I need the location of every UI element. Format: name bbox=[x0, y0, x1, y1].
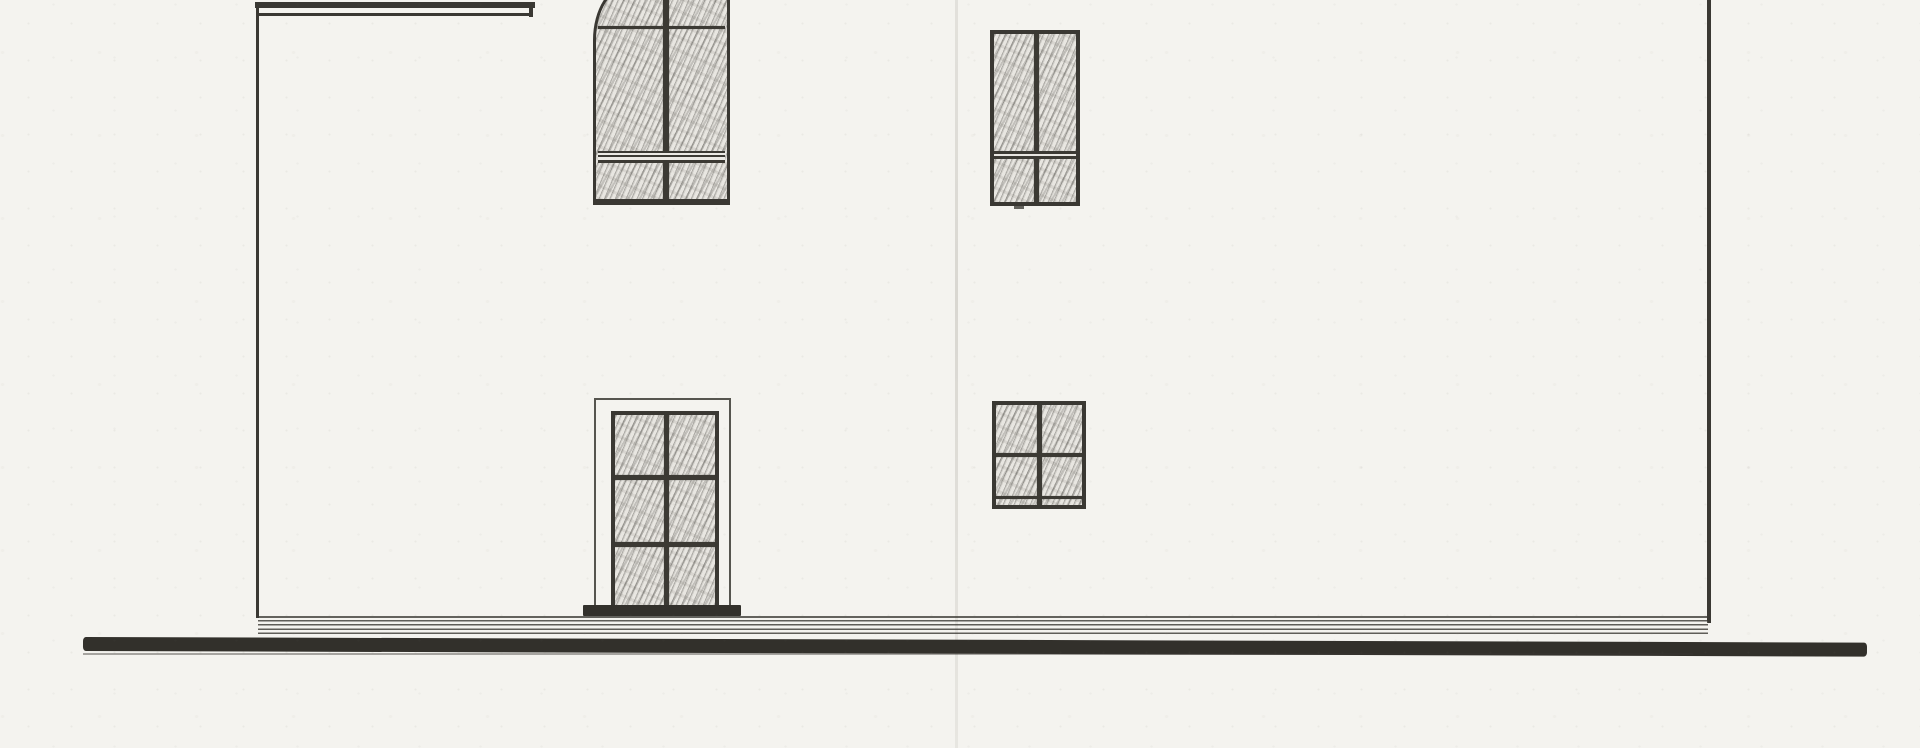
small-window-rail bbox=[996, 453, 1082, 457]
left-wall-edge-line bbox=[256, 5, 259, 618]
door-window-lower-bar bbox=[615, 542, 715, 547]
upper-left-arched-window-mullion bbox=[663, 0, 669, 199]
right-wall-edge-line bbox=[1707, 0, 1711, 623]
door-window-mullion bbox=[664, 415, 669, 607]
facade-base-line bbox=[257, 616, 1709, 618]
upper-left-arched-window-top-bar bbox=[598, 26, 725, 29]
upper-right-window-mullion bbox=[1034, 34, 1039, 202]
roof-eave-thick-line bbox=[255, 2, 535, 8]
upper-right-window-rail bbox=[994, 151, 1076, 159]
door-window-sill bbox=[583, 605, 741, 616]
small-window-inner-sill-line bbox=[996, 496, 1082, 499]
upper-left-arched-window-frame bbox=[593, 0, 730, 205]
ground-underline bbox=[83, 653, 1693, 655]
door-window-upper-bar bbox=[615, 475, 715, 480]
roof-eave-end-cap bbox=[529, 2, 533, 17]
plinth-course-lines bbox=[258, 620, 1708, 637]
drawing-sheet bbox=[0, 0, 1920, 748]
roof-eave-thin-line bbox=[257, 13, 533, 16]
window-sill-tick bbox=[1014, 206, 1024, 209]
upper-left-arched-window-rail bbox=[598, 151, 725, 163]
